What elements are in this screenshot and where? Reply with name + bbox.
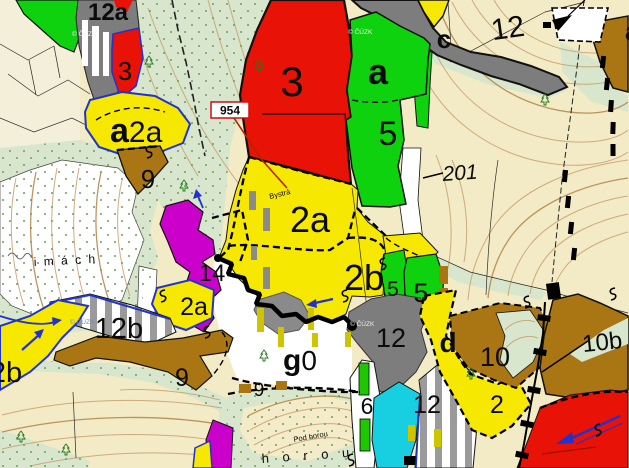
stand-label-9-small: 9	[254, 380, 265, 401]
road-label-c: c	[437, 24, 451, 54]
watermark-cuzk: © ČÚZK	[348, 27, 373, 36]
forest-stand-map[interactable]: 954 12a 3 a2a 9 3 a 5 c 12 a 201 2a 2b 5…	[0, 0, 629, 468]
stand-label-10: 10	[480, 342, 510, 372]
stand-label-2a-small: 2a	[180, 293, 208, 321]
stand-label-9-brown: 9	[175, 364, 189, 392]
stand-label-2a-big: 2a	[290, 199, 331, 240]
road-label-201: 201	[441, 161, 479, 186]
stand-label-10b: 10b	[581, 327, 624, 358]
stand-label-a2a: a2a	[110, 112, 163, 150]
stand-label-5b: 5	[413, 278, 428, 308]
stand-label-5a: 5	[387, 278, 399, 301]
map-viewport[interactable]: 954 12a 3 a2a 9 3 a 5 c 12 a 201 2a 2b 5…	[0, 0, 629, 468]
stand-label-a-edge: a	[625, 16, 629, 46]
stand-label-6: 6	[361, 393, 374, 419]
stand-label-d: d	[439, 327, 456, 358]
parcel-label-12-top: 12	[489, 10, 527, 47]
stand-label-2: 2	[490, 391, 504, 419]
stand-label-9-top: 9	[141, 164, 155, 194]
stand-label-5: 5	[379, 115, 398, 153]
stand-label-2b-big: 2b	[344, 257, 384, 298]
green-bar-6	[359, 363, 369, 395]
stand-label-3-big: 3	[280, 58, 303, 105]
stand-label-14: 14	[199, 260, 226, 287]
stand-label-12a: 12a	[88, 0, 129, 26]
watermark-cuzk: © ČÚZK	[70, 317, 95, 326]
stand-label-12b: 12b	[95, 313, 143, 345]
black-square-marker	[546, 282, 561, 300]
stand-label-g0: g0	[283, 344, 317, 377]
stand-label-2b-left: 2b	[0, 357, 22, 389]
watermark-cuzk: © ČÚZK	[72, 29, 97, 38]
stand-label-3-small: 3	[118, 56, 132, 86]
stand-label-a: a	[368, 51, 389, 92]
stand-label-12-stripes: 12	[413, 391, 441, 419]
km-954-label: 954	[220, 104, 240, 118]
km-marker-954: 954	[211, 102, 249, 118]
stand-label-12-gray: 12	[376, 323, 406, 353]
watermark-cuzk: © ČÚZK	[350, 319, 375, 328]
